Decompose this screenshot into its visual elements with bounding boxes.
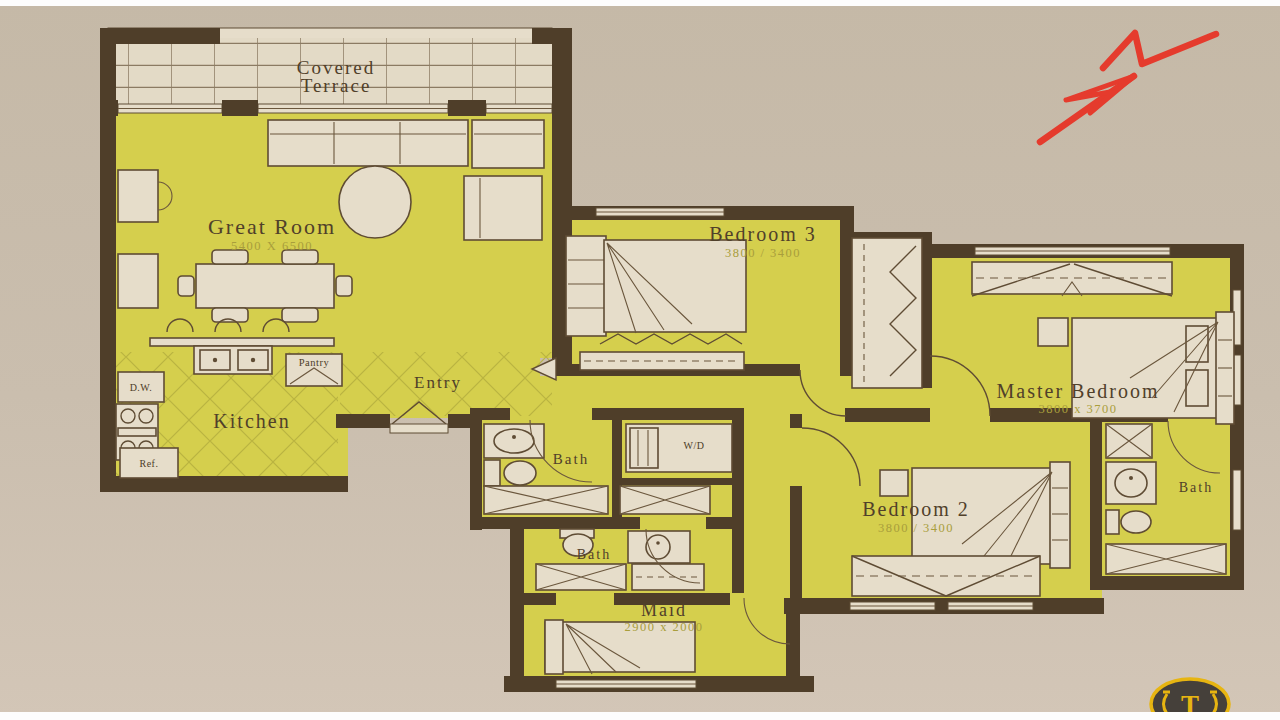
pantry-label: Pantry bbox=[299, 357, 330, 368]
bottom-white-strip bbox=[0, 712, 1280, 720]
bedroom3-label: Bedroom 3 bbox=[709, 223, 816, 245]
entry-step bbox=[390, 424, 448, 433]
terrace-post bbox=[222, 100, 258, 116]
bed-headboard bbox=[1050, 462, 1070, 568]
sink bbox=[646, 535, 670, 559]
bar-counter bbox=[150, 338, 334, 346]
nightstand bbox=[1038, 318, 1068, 346]
top-white-strip bbox=[0, 0, 1280, 6]
dining-chair bbox=[212, 308, 248, 322]
maid-dims: 2900 x 2000 bbox=[625, 620, 704, 634]
sink bbox=[494, 429, 534, 453]
master-bedroom-label: Master Bedroom bbox=[997, 380, 1160, 402]
refrigerator-label: Ref. bbox=[140, 458, 159, 469]
master-bedroom-dims: 3800 x 3700 bbox=[1039, 402, 1118, 416]
entry-label: Entry bbox=[414, 373, 462, 392]
dining-chair bbox=[336, 276, 352, 296]
great-room-label: Great Room bbox=[208, 214, 336, 239]
bed-headboard bbox=[566, 236, 606, 336]
master-closet bbox=[852, 238, 922, 388]
master-bath-label: Bath bbox=[1179, 480, 1213, 495]
bed-headboard bbox=[545, 620, 563, 674]
bedroom3-dims: 3800 / 3400 bbox=[725, 246, 801, 260]
side-table bbox=[118, 254, 158, 308]
corridor-floor bbox=[740, 414, 792, 604]
round-table bbox=[339, 166, 411, 238]
toilet-tank bbox=[484, 460, 500, 486]
great-room-dims: 5400 X 6500 bbox=[231, 239, 313, 253]
washer bbox=[630, 428, 658, 468]
toilet bbox=[504, 461, 536, 485]
pillow bbox=[1186, 370, 1208, 406]
nightstand bbox=[880, 470, 908, 496]
toilet bbox=[1121, 511, 1151, 533]
hall-bath-label: Bath bbox=[553, 451, 589, 467]
toilet-tank bbox=[1106, 510, 1119, 534]
dining-table bbox=[196, 264, 334, 308]
kitchen-label: Kitchen bbox=[213, 410, 290, 432]
terrace-post bbox=[448, 100, 486, 116]
floor-plan-canvas: Covered Terrace Great Room 5400 X 6500 K… bbox=[0, 0, 1280, 720]
bedroom2-label: Bedroom 2 bbox=[862, 498, 969, 520]
sink bbox=[1115, 469, 1147, 497]
dining-chair bbox=[282, 308, 318, 322]
maid-bath-floor bbox=[510, 517, 744, 605]
side-table bbox=[118, 170, 158, 222]
dining-chair bbox=[178, 276, 194, 296]
bedroom2-dims: 3800 / 3400 bbox=[878, 521, 954, 535]
maid-bath-label: Bath bbox=[577, 547, 611, 562]
armchair bbox=[464, 176, 542, 240]
laundry-label: W/D bbox=[684, 440, 705, 451]
closet-box bbox=[852, 238, 922, 388]
dishwasher-label: D.W. bbox=[130, 382, 153, 393]
floorplan-screenshot: Covered Terrace Great Room 5400 X 6500 K… bbox=[0, 0, 1280, 720]
wardrobe bbox=[972, 262, 1172, 294]
sofa bbox=[268, 120, 468, 166]
armchair bbox=[472, 120, 544, 168]
terrace-label-line2: Terrace bbox=[301, 75, 372, 96]
maid-label: Maid bbox=[641, 600, 687, 620]
pillow bbox=[1186, 326, 1208, 362]
